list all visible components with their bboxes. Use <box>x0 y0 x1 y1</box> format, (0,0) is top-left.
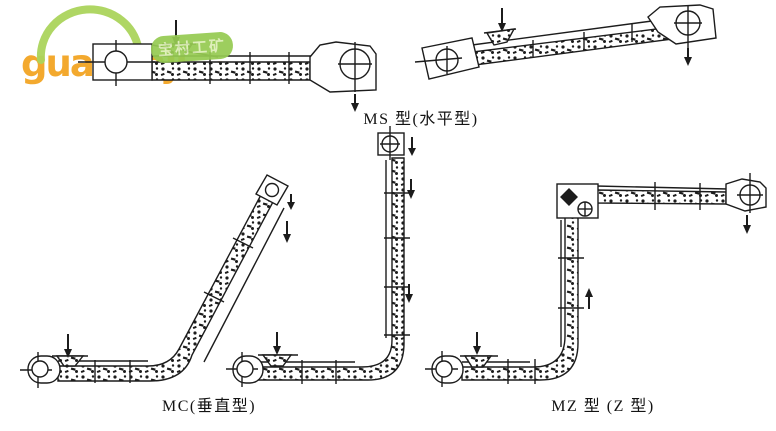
tail-wheel <box>436 361 452 377</box>
watermark-badge-text: 宝村工矿 <box>157 35 226 61</box>
figure-mc-vertical <box>226 126 416 387</box>
feed-arrow <box>473 332 481 355</box>
discharge-arrow <box>743 215 751 234</box>
corner-box <box>557 184 598 218</box>
feed-hopper <box>465 356 491 367</box>
discharge-arrow <box>408 137 416 156</box>
watermark-badge: 宝村工矿 <box>150 31 234 64</box>
feed-hopper <box>263 355 291 366</box>
feed-arrow <box>498 8 506 32</box>
feed-arrow <box>64 334 72 358</box>
direction-arrow <box>407 179 415 199</box>
tail-wheel <box>237 361 253 377</box>
discharge-arrow <box>287 194 295 210</box>
figure-mz <box>425 173 766 387</box>
scanned-diagram-page: guabanji .net <box>0 0 776 431</box>
tail-wheel <box>105 51 127 73</box>
trough-band <box>152 62 310 80</box>
figure-ms-inclined <box>415 5 716 79</box>
tail-wheel <box>32 361 48 377</box>
feed-arrow <box>273 332 281 355</box>
caption-mc-type: MC(垂直型) <box>119 392 299 416</box>
trough-band <box>596 190 726 204</box>
head-wheel <box>266 184 279 197</box>
feed-hopper <box>57 356 83 366</box>
trough-rail <box>596 186 728 189</box>
conveyor-diagram-art <box>0 0 776 431</box>
up-direction-arrow <box>585 288 593 309</box>
direction-arrow <box>283 221 291 243</box>
discharge-arrow <box>684 48 692 66</box>
caption-mz-type: MZ 型 (Z 型) <box>513 392 693 416</box>
caption-ms-type: MS 型(水平型) <box>331 105 511 129</box>
